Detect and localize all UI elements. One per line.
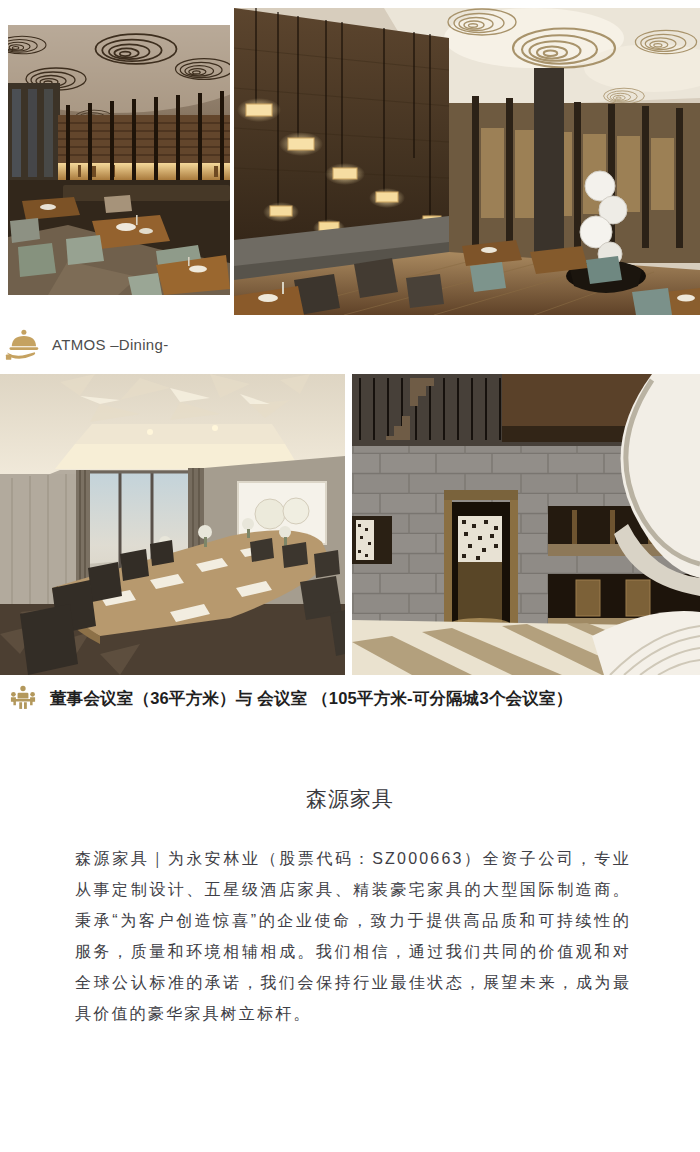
photo-dining-interior-right[interactable] [234,8,700,315]
caption-dining-label: ATMOS –Dining- [52,336,168,353]
caption-meeting-label: 董事会议室（36平方米）与 会议室 （105平方米-可分隔城3个会议室） [50,688,572,710]
caption-meeting: 董事会议室（36平方米）与 会议室 （105平方米-可分隔城3个会议室） [0,675,700,722]
meeting-icon [8,685,38,712]
cloche-icon [5,328,41,361]
photo-boardroom[interactable] [0,374,345,675]
article-title: 森源家具 [0,785,700,813]
caption-dining: ATMOS –Dining- [0,315,700,374]
photo-lobby-staircase[interactable] [352,374,700,675]
photo-dining-interior-left[interactable] [8,25,230,295]
article-page: ATMOS –Dining- [0,0,700,1152]
meeting-photo-row [0,374,700,675]
article-paragraph: 森源家具｜为永安林业（股票代码：SZ000663）全资子公司，专业从事定制设计、… [75,843,631,1029]
dining-photo-row [0,0,700,315]
